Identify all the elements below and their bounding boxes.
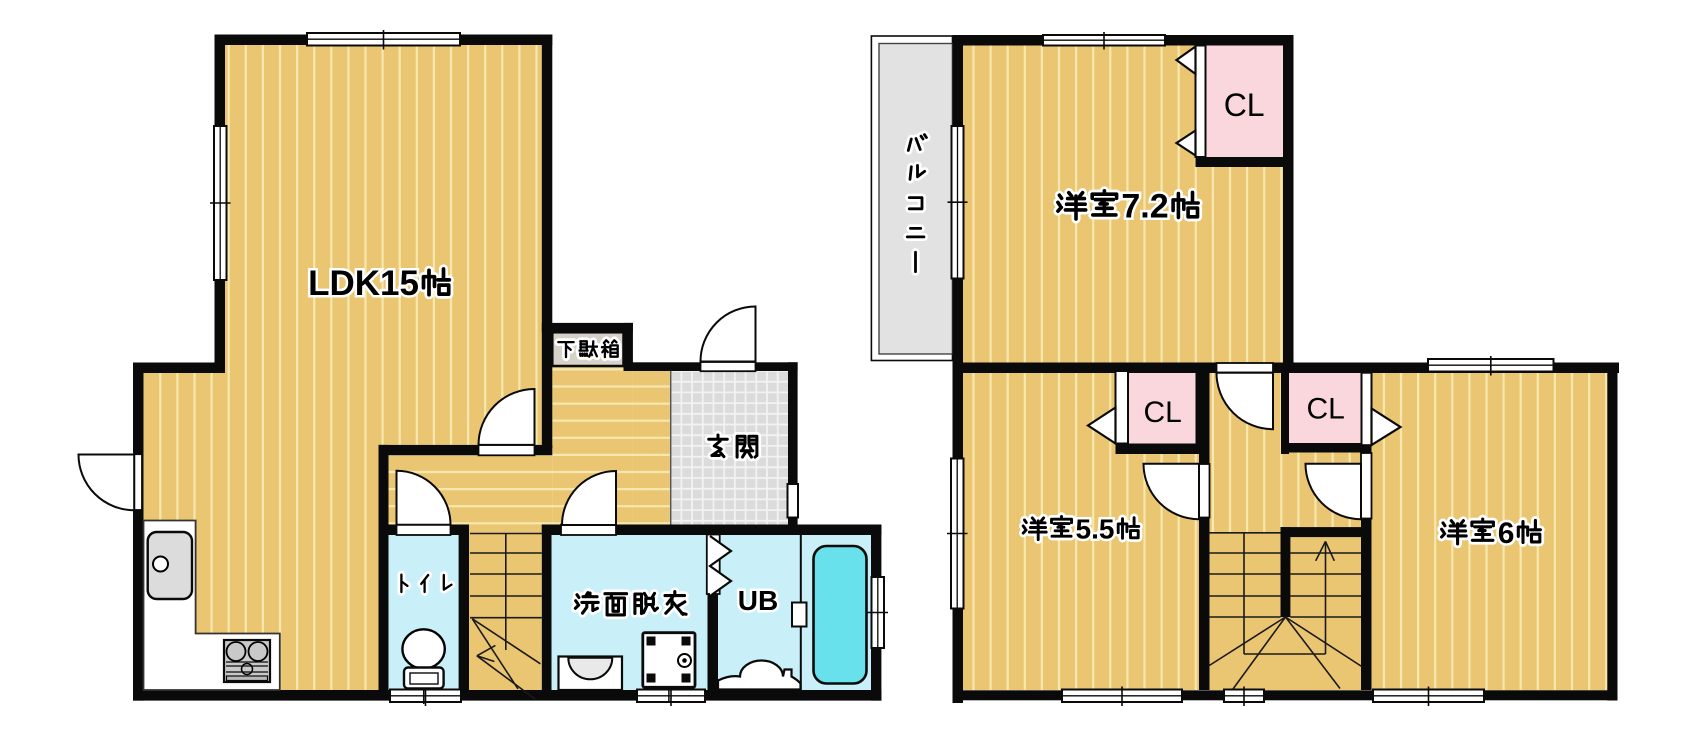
svg-text:5.5: 5.5	[1076, 514, 1115, 545]
svg-text:CL: CL	[1307, 392, 1345, 425]
svg-text:6: 6	[1498, 517, 1515, 550]
svg-text:LDK15: LDK15	[308, 264, 419, 303]
svg-text:UB: UB	[738, 585, 778, 616]
svg-text:7.2: 7.2	[1121, 188, 1168, 226]
svg-text:CL: CL	[1224, 87, 1265, 123]
svg-text:CL: CL	[1144, 396, 1182, 429]
